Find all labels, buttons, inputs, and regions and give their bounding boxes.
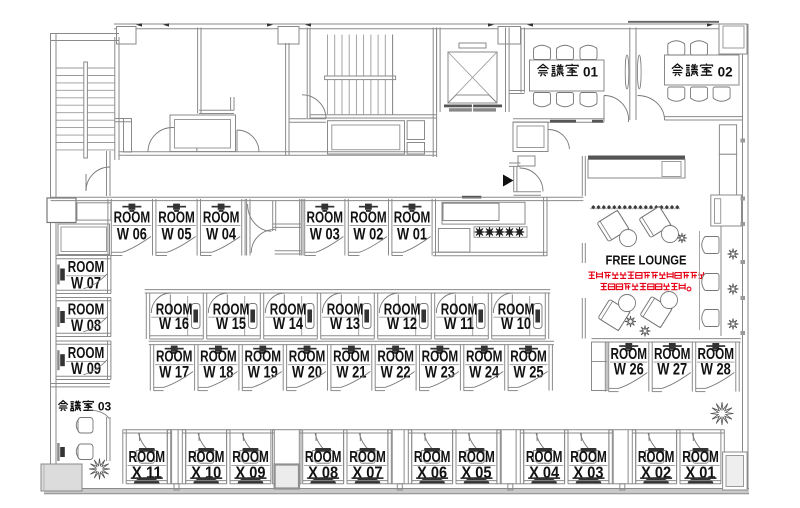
svg-text:W 15: W 15 <box>216 315 246 333</box>
svg-text:W 18: W 18 <box>203 363 233 381</box>
svg-text:W 14: W 14 <box>273 315 303 333</box>
svg-text:W 17: W 17 <box>159 363 189 381</box>
svg-text:W 25: W 25 <box>514 363 544 381</box>
svg-text:W 16: W 16 <box>159 315 189 333</box>
svg-text:W 11: W 11 <box>444 315 474 333</box>
svg-text:02: 02 <box>718 65 733 80</box>
svg-text:W 05: W 05 <box>162 225 192 243</box>
svg-text:W 23: W 23 <box>425 363 455 381</box>
svg-text:W 26: W 26 <box>614 361 644 379</box>
svg-text:ROOM: ROOM <box>394 209 431 226</box>
svg-text:W 22: W 22 <box>381 363 411 381</box>
svg-text:W 04: W 04 <box>206 225 236 243</box>
svg-text:W 06: W 06 <box>117 225 147 243</box>
svg-text:ROOM: ROOM <box>350 209 387 226</box>
svg-text:ROOM: ROOM <box>158 209 195 226</box>
svg-text:W 19: W 19 <box>248 363 278 381</box>
svg-text:W 10: W 10 <box>501 315 531 333</box>
svg-text:W 13: W 13 <box>330 315 360 333</box>
svg-text:W 21: W 21 <box>336 363 366 381</box>
svg-text:W 20: W 20 <box>292 363 322 381</box>
svg-text:03: 03 <box>98 399 112 413</box>
svg-text:W 03: W 03 <box>310 225 340 243</box>
svg-text:W 12: W 12 <box>387 315 417 333</box>
svg-text:ROOM: ROOM <box>114 209 151 226</box>
svg-text:W 24: W 24 <box>469 363 499 381</box>
svg-text:01: 01 <box>583 65 599 80</box>
svg-text:W 01: W 01 <box>397 225 427 243</box>
svg-text:W 02: W 02 <box>353 225 383 243</box>
svg-text:ROOM: ROOM <box>203 209 240 226</box>
svg-text:W 28: W 28 <box>701 361 731 379</box>
svg-text:FREE LOUNGE: FREE LOUNGE <box>606 253 687 268</box>
svg-text:ROOM: ROOM <box>307 209 344 226</box>
svg-text:W 27: W 27 <box>657 361 687 379</box>
